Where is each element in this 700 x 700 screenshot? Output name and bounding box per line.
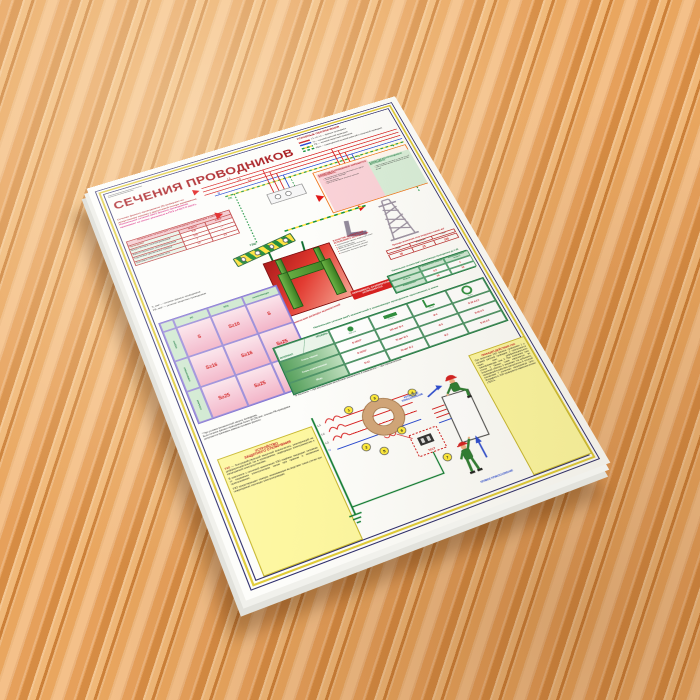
coil-label: L3 <box>324 440 330 445</box>
corner-top-label: ПРОФИЛЬ <box>316 332 329 338</box>
poster: СЕЧЕНИЯ ПРОВОДНИКОВ УСЛОВНЫЕ ОБОЗНАЧЕНИЯ… <box>87 96 611 600</box>
pe-label: PE <box>228 196 233 200</box>
electrical-panel <box>442 389 489 442</box>
busbar-hole <box>282 237 289 243</box>
busbar-hole <box>268 244 275 250</box>
wooden-table-scene: СЕЧЕНИЯ ПРОВОДНИКОВ УСЛОВНЫЕ ОБОЗНАЧЕНИЯ… <box>0 0 700 700</box>
paint-warning-box: ОКРАШИВАТЬ ЗАЗЕМЛИТЕЛИ ЗАПРЕЩАЕТСЯ <box>350 278 394 299</box>
pointer-triangle-icon <box>214 210 224 219</box>
neutral-label: N <box>328 447 332 452</box>
electrode-right-leg <box>320 258 347 295</box>
busbar-hole <box>240 257 247 263</box>
coil-label: L2 <box>320 431 326 436</box>
poster-board: СЕЧЕНИЯ ПРОВОДНИКОВ УСЛОВНЫЕ ОБОЗНАЧЕНИЯ… <box>87 96 611 600</box>
col-label: Полоса <box>388 317 395 321</box>
test-button-label: ТЕСТ <box>428 447 437 453</box>
busbar-hole <box>254 250 261 256</box>
coil-label: L1 <box>317 423 323 428</box>
neutral-label: N <box>217 191 220 195</box>
body-text: При включении УЗО фазные проводники 1 и … <box>475 343 538 384</box>
release-device <box>417 433 435 446</box>
forbidden-grounding-list: В КАЧЕСТВЕ ЗАЗЕМЛИТЕЛЕЙ ИСПОЛЬЗОВАТЬ ЗАП… <box>333 229 379 255</box>
gzsh-label: ГЗШ <box>249 242 257 247</box>
